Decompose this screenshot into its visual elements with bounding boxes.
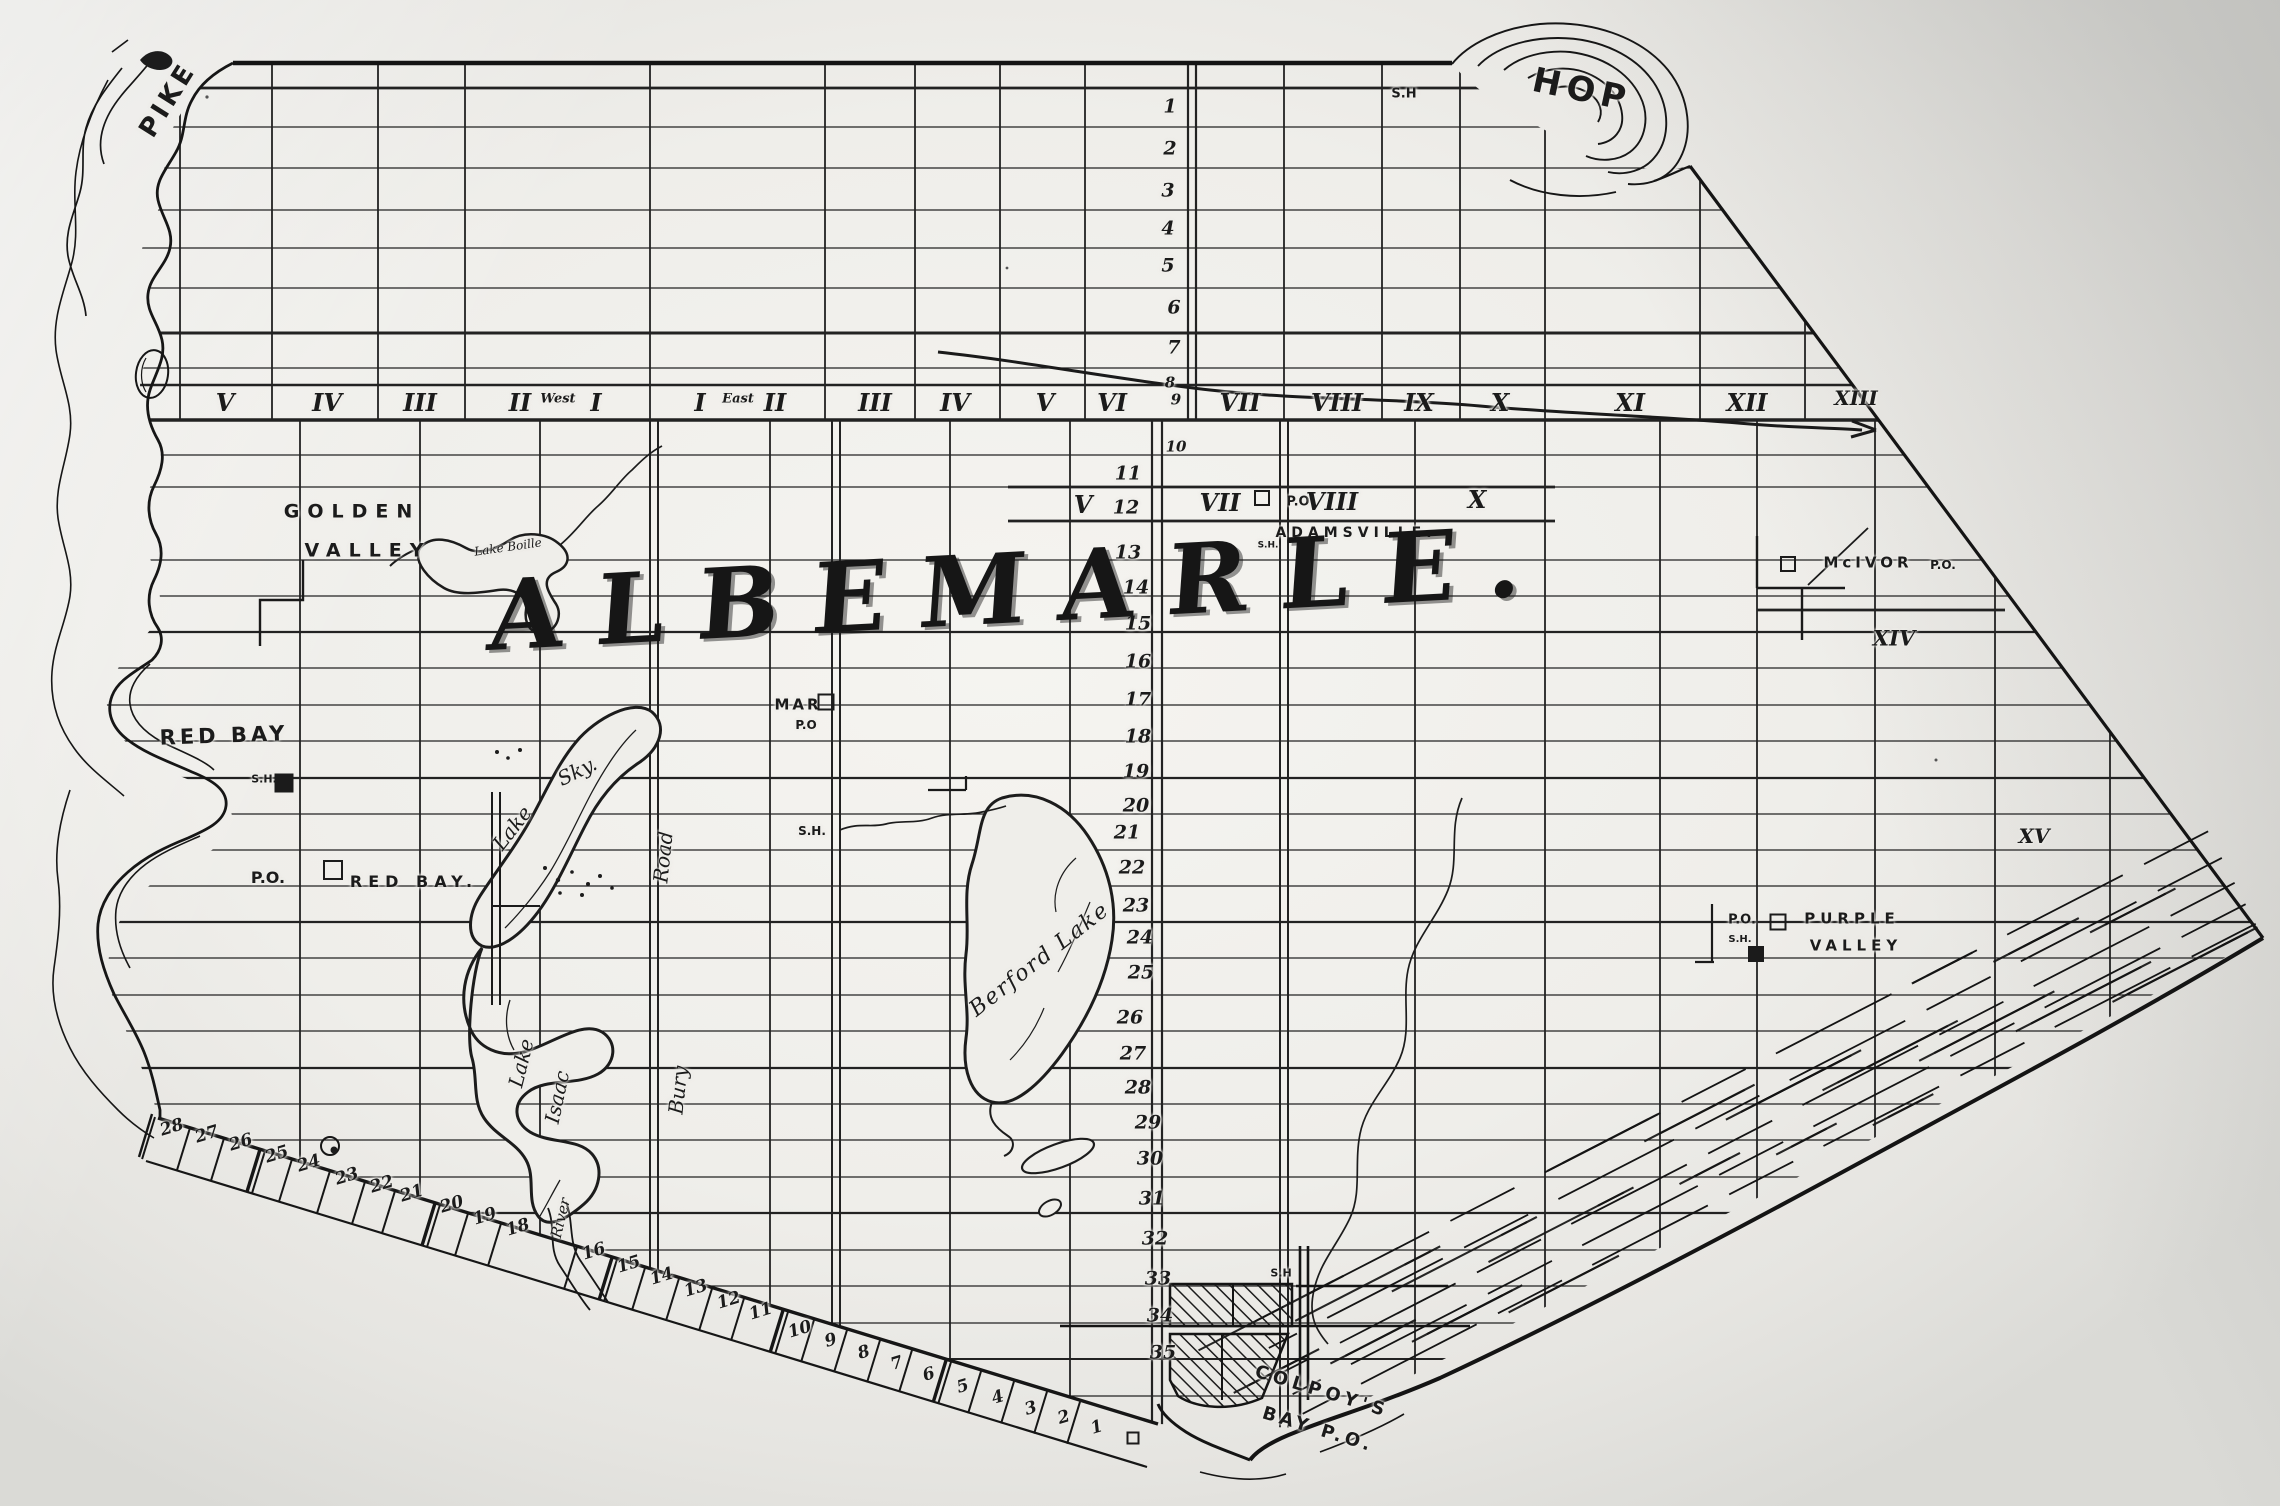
concession-numeral: VII xyxy=(1219,391,1260,415)
concession-numeral: XIV xyxy=(1873,628,1915,649)
shore-lot-number: 4 xyxy=(990,1388,1006,1408)
shore-lot-number: 5 xyxy=(955,1377,971,1397)
shore-lot-number: 6 xyxy=(921,1365,937,1385)
shore-lot-number: 28 xyxy=(158,1116,186,1139)
label-purple-valley-po: P.O. xyxy=(1728,914,1756,927)
concession-numeral: VIII xyxy=(1306,490,1358,514)
lot-number: 3 xyxy=(1161,182,1174,201)
lot-number: 25 xyxy=(1128,964,1154,983)
lot-number: 21 xyxy=(1114,824,1140,843)
po-marker xyxy=(1127,1432,1140,1445)
label-isaac-lake-2: Isaac xyxy=(542,1069,573,1125)
concession-numeral: IV xyxy=(312,391,342,415)
map-canvas: PIKEHOPS.HGOLDENVALLEYRED BAYS.H.P.O.RED… xyxy=(0,0,2280,1506)
concession-numeral: XII xyxy=(1726,391,1767,415)
shore-lot-number: 3 xyxy=(1023,1399,1039,1419)
label-red-bay-po-name: RED BAY. xyxy=(350,874,478,890)
lot-number: 18 xyxy=(1125,728,1151,747)
concession-numeral: V xyxy=(216,391,235,415)
label-berford-lake: Berford Lake xyxy=(966,899,1114,1021)
lot-number: 32 xyxy=(1142,1230,1168,1249)
lot-number: 26 xyxy=(1117,1009,1143,1028)
concession-numeral: XV xyxy=(2018,826,2049,846)
concession-numeral: I xyxy=(590,391,601,415)
lot-number: 6 xyxy=(1167,299,1180,318)
shore-lot-number: 15 xyxy=(615,1253,643,1276)
po-marker xyxy=(1780,556,1796,572)
label-school-hope: S.H xyxy=(1391,88,1416,101)
lot-number: 24 xyxy=(1127,929,1153,948)
concession-numeral: VII xyxy=(1199,491,1240,515)
lot-number: 35 xyxy=(1150,1344,1176,1363)
concession-numeral: X xyxy=(1491,391,1510,415)
concession-numeral: III xyxy=(403,391,437,415)
concession-numeral: VIII xyxy=(1311,391,1363,415)
shore-lot-number: 25 xyxy=(263,1143,291,1166)
po-marker xyxy=(1254,490,1270,506)
po-marker xyxy=(1770,914,1787,931)
concession-numeral: East xyxy=(722,393,754,406)
concession-numeral: XIII xyxy=(1834,388,1878,408)
shore-lot-number: 1 xyxy=(1089,1418,1105,1438)
po-marker xyxy=(323,860,343,880)
shore-lot-number: 26 xyxy=(227,1131,255,1154)
lot-number: 7 xyxy=(1167,339,1180,358)
lot-number: 8 xyxy=(1165,376,1175,391)
label-mar-po: P.O xyxy=(795,719,816,731)
label-school-purple-valley: S.H. xyxy=(1728,935,1751,945)
lot-number: 23 xyxy=(1123,897,1149,916)
shore-lot-number: 23 xyxy=(333,1165,361,1188)
po-marker xyxy=(818,694,835,711)
label-sky-lake-2: Sky. xyxy=(554,753,599,789)
concession-numeral: IV xyxy=(940,391,970,415)
concession-numeral: II xyxy=(509,391,531,415)
shore-lot-number: 19 xyxy=(471,1205,499,1228)
label-isaac-lake-1: Lake xyxy=(505,1037,536,1090)
label-mar: MAR xyxy=(774,698,821,713)
lot-number: 34 xyxy=(1147,1307,1173,1326)
lot-number: 22 xyxy=(1119,859,1145,878)
lot-number: 19 xyxy=(1123,763,1149,782)
concession-numeral: XI xyxy=(1615,391,1645,415)
lot-number: 20 xyxy=(1123,797,1149,816)
concession-numeral: I xyxy=(694,391,705,415)
lot-number: 5 xyxy=(1161,257,1174,276)
lot-number: 2 xyxy=(1163,140,1176,159)
shore-lot-number: 14 xyxy=(648,1265,676,1288)
label-river: River xyxy=(549,1196,573,1239)
label-layer: PIKEHOPS.HGOLDENVALLEYRED BAYS.H.P.O.RED… xyxy=(0,0,2280,1506)
concession-numeral: V xyxy=(1036,391,1055,415)
lot-number: 28 xyxy=(1125,1079,1151,1098)
shore-lot-number: 27 xyxy=(193,1123,221,1146)
shore-lot-number: 2 xyxy=(1056,1408,1072,1428)
shore-lot-number: 16 xyxy=(580,1240,608,1263)
shore-lot-number: 7 xyxy=(889,1354,905,1374)
concession-numeral: III xyxy=(858,391,892,415)
label-pike-bay: PIKE xyxy=(135,58,201,142)
shore-lot-number: 24 xyxy=(295,1152,323,1175)
label-school-red-bay: S.H. xyxy=(251,774,277,785)
label-golden-valley-1: GOLDEN xyxy=(284,503,421,522)
shore-lot-number: 20 xyxy=(438,1193,466,1216)
lot-number: 9 xyxy=(1171,393,1181,408)
label-mcivor: McIVOR xyxy=(1823,556,1912,571)
label-purple-valley-1: PURPLE xyxy=(1804,912,1900,927)
shore-lot-number: 21 xyxy=(398,1182,426,1205)
lot-number: 17 xyxy=(1125,691,1151,710)
label-bury-road-2: Road xyxy=(650,830,675,884)
concession-numeral: VI xyxy=(1097,391,1127,415)
school-marker xyxy=(1748,946,1764,962)
shore-lot-number: 9 xyxy=(823,1331,839,1351)
label-mcivor-po: P.O. xyxy=(1930,559,1956,571)
lot-number: 29 xyxy=(1135,1114,1161,1133)
label-red-bay-po: P.O. xyxy=(251,870,285,886)
lot-number: 30 xyxy=(1137,1150,1163,1169)
shore-lot-number: 8 xyxy=(856,1343,872,1363)
lot-number: 33 xyxy=(1145,1270,1171,1289)
lot-number: 12 xyxy=(1113,499,1139,518)
label-purple-valley-2: VALLEY xyxy=(1810,939,1902,954)
lot-number: 16 xyxy=(1125,653,1151,672)
lot-number: 1 xyxy=(1163,98,1176,117)
lot-number: 10 xyxy=(1166,440,1187,455)
concession-numeral: West xyxy=(540,393,575,406)
lot-number: 11 xyxy=(1115,465,1141,484)
concession-numeral: V xyxy=(1074,493,1093,517)
label-school-mar: S.H. xyxy=(798,825,826,837)
lot-number: 27 xyxy=(1120,1045,1146,1064)
shore-lot-number: 22 xyxy=(368,1173,396,1196)
label-hope-bay: HOP xyxy=(1529,63,1634,117)
label-golden-valley-2: VALLEY xyxy=(304,542,431,561)
shore-lot-number: 12 xyxy=(715,1289,743,1312)
lot-number: 31 xyxy=(1139,1190,1165,1209)
label-school-colpoys: S.H xyxy=(1270,1268,1291,1279)
label-small-lake: Lake Boille xyxy=(474,536,543,557)
label-bury-road-1: Bury xyxy=(666,1065,691,1115)
lot-number: 4 xyxy=(1161,220,1174,239)
shore-lot-number: 11 xyxy=(747,1300,775,1323)
shore-lot-number: 10 xyxy=(786,1318,814,1341)
shore-lot-number: 18 xyxy=(504,1216,532,1239)
shore-lot-number: 13 xyxy=(682,1277,710,1300)
concession-numeral: II xyxy=(764,391,786,415)
label-sky-lake-1: Lake xyxy=(489,802,535,853)
school-marker xyxy=(275,774,294,793)
concession-numeral: IX xyxy=(1404,391,1434,415)
label-red-bay: RED BAY xyxy=(159,723,288,748)
